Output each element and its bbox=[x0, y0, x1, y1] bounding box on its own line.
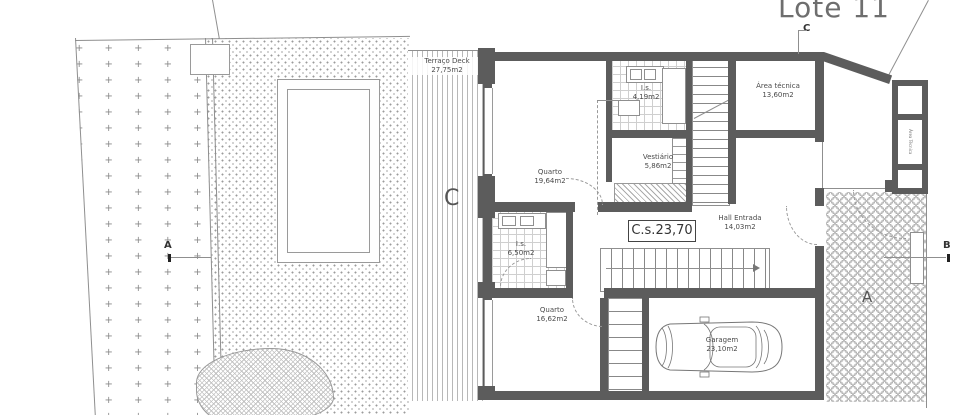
stairwell bbox=[692, 58, 730, 206]
reference-dashed-line bbox=[597, 100, 598, 215]
wing-area-tecnica-label: Área Técnica bbox=[908, 129, 913, 154]
bathroom-1-basin-2 bbox=[644, 69, 656, 80]
exterior-edge-line bbox=[822, 142, 823, 188]
window-quarto1 bbox=[484, 88, 493, 174]
small-structure bbox=[190, 44, 230, 75]
pier-1 bbox=[478, 48, 495, 84]
pier-3 bbox=[478, 282, 495, 298]
hall-label: Hall Entrada 14,03m2 bbox=[705, 214, 775, 232]
stair-rail-line bbox=[606, 268, 754, 269]
bathroom-2-toilet bbox=[546, 270, 566, 286]
page-title: Lote 11 bbox=[778, 0, 928, 24]
wing-frame: Área Técnica bbox=[892, 80, 928, 194]
section-line-b bbox=[884, 257, 946, 258]
window-quarto2 bbox=[484, 300, 493, 386]
area-tecnica-area: 13,60m2 bbox=[740, 91, 816, 100]
area-tecnica-label: Área técnica 13,60m2 bbox=[740, 82, 816, 100]
section-line-a bbox=[171, 257, 211, 258]
bathroom2-area: 6,50m2 bbox=[492, 249, 550, 258]
section-marker-b: B bbox=[943, 240, 951, 251]
floor-plan: + + + + + + + + + + + + + + + + + + + + … bbox=[0, 0, 960, 415]
wall-right-mid bbox=[815, 188, 824, 206]
section-marker-a: A bbox=[164, 240, 172, 251]
wall-vestiario-right bbox=[686, 52, 692, 210]
wall-bathroom2-right bbox=[566, 210, 573, 290]
vestiario-area: 5,86m2 bbox=[630, 162, 686, 171]
level-label-box: C.s.23,70 bbox=[628, 220, 696, 242]
deck-letter: C bbox=[444, 186, 459, 211]
door-arc-hall bbox=[786, 206, 817, 245]
section-tick-a bbox=[168, 254, 171, 262]
wing-cell-3 bbox=[898, 170, 922, 188]
wall-stairwell-right bbox=[728, 52, 736, 204]
wall-wardrobe-right bbox=[642, 298, 649, 400]
stair-direction-arrow bbox=[753, 264, 760, 272]
courtyard-door-leaf bbox=[910, 232, 924, 284]
wall-below-bathroom1 bbox=[606, 130, 692, 138]
wall-quarto1-right bbox=[606, 52, 612, 182]
section-line-c-v bbox=[798, 30, 799, 54]
section-tick-b bbox=[947, 254, 950, 262]
vestiario-name: Vestiário bbox=[630, 153, 686, 162]
deck-label: Terraço Deck 27,75m2 bbox=[412, 57, 482, 75]
bathroom2-name: I.s. bbox=[492, 240, 550, 249]
wall-top-slope bbox=[821, 52, 892, 84]
quarto2-name: Quarto bbox=[512, 306, 592, 315]
wall-hall-top bbox=[606, 202, 692, 212]
garagem-area: 23,10m2 bbox=[686, 345, 758, 354]
deck-area bbox=[408, 50, 484, 401]
vestiario-label: Vestiário 5,86m2 bbox=[630, 153, 686, 171]
wall-lower-left bbox=[483, 288, 573, 298]
courtyard-letter: A bbox=[862, 288, 872, 306]
grass-area: + + + + + + + + + + + + + + + + + + + + … bbox=[75, 38, 225, 415]
pool-inner bbox=[287, 89, 370, 253]
bathroom-2-basin-2 bbox=[520, 216, 534, 226]
wall-below-area-tecnica bbox=[736, 130, 815, 138]
bathroom-1-basin-1 bbox=[630, 69, 642, 80]
garagem-label: Garagem 23,10m2 bbox=[686, 336, 758, 354]
wall-quarto1-bottom bbox=[483, 202, 575, 212]
wall-right-lower bbox=[815, 246, 824, 391]
wardrobe-strip bbox=[608, 298, 644, 400]
hall-area: 14,03m2 bbox=[705, 223, 775, 232]
wall-top bbox=[483, 52, 824, 61]
quarto2-area: 16,62m2 bbox=[512, 315, 592, 324]
quarto1-area: 19,64m2 bbox=[515, 177, 585, 186]
hall-name: Hall Entrada bbox=[705, 214, 775, 223]
area-tecnica-name: Área técnica bbox=[740, 82, 816, 91]
wing-cell-1 bbox=[898, 86, 922, 114]
section-line-c-h bbox=[798, 30, 807, 31]
wall-lower-right bbox=[604, 288, 824, 298]
wall-right-upper bbox=[815, 52, 824, 142]
pier-2 bbox=[478, 176, 495, 218]
courtyard-right-line bbox=[926, 192, 927, 408]
main-stair bbox=[600, 248, 770, 292]
deck-label-area: 27,75m2 bbox=[412, 66, 482, 75]
bathroom-2-basin-1 bbox=[502, 216, 516, 226]
pier-4 bbox=[478, 386, 495, 400]
wing-cell-2: Área Técnica bbox=[898, 120, 922, 164]
quarto2-label: Quarto 16,62m2 bbox=[512, 306, 592, 324]
lot-line-top-left bbox=[212, 0, 220, 38]
garagem-name: Garagem bbox=[686, 336, 758, 345]
deck-label-name: Terraço Deck bbox=[412, 57, 482, 66]
bathroom1-name: I.s. bbox=[620, 84, 672, 93]
bathroom1-area: 4,19m2 bbox=[620, 93, 672, 102]
pool bbox=[277, 79, 380, 263]
bathroom1-label: I.s. 4,19m2 bbox=[620, 84, 672, 102]
quarto1-name: Quarto bbox=[515, 168, 585, 177]
bathroom-1-toilet bbox=[618, 100, 640, 116]
section-marker-c: C bbox=[803, 23, 810, 34]
wall-bottom bbox=[483, 391, 824, 400]
courtyard-top-line bbox=[824, 188, 885, 189]
quarto1-label: Quarto 19,64m2 bbox=[515, 168, 585, 186]
bathroom2-label: I.s. 6,50m2 bbox=[492, 240, 550, 258]
